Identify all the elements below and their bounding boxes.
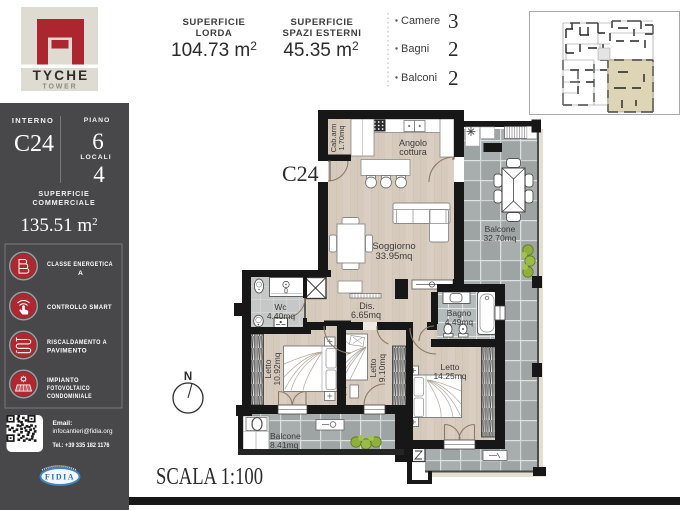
svg-text:2: 2 (448, 66, 459, 90)
svg-text:3: 3 (448, 9, 459, 33)
svg-text:6: 6 (92, 129, 104, 154)
svg-text:CLASSE ENERGETICA: CLASSE ENERGETICA (47, 261, 113, 268)
svg-text:infocantieri@fidia.org: infocantieri@fidia.org (53, 428, 113, 435)
svg-text:C24: C24 (14, 131, 54, 157)
svg-text:CONTROLLO SMART: CONTROLLO SMART (47, 304, 112, 311)
svg-text:33.95mq: 33.95mq (376, 251, 413, 262)
svg-text:Bagni: Bagni (401, 43, 429, 55)
svg-text:2: 2 (448, 37, 459, 61)
svg-text:14.25mq: 14.25mq (433, 371, 466, 381)
svg-text:1.70mq: 1.70mq (337, 125, 346, 150)
svg-text:SUPERFICIE: SUPERFICIE (38, 189, 89, 198)
svg-text:N: N (184, 371, 192, 383)
svg-text:IMPIANTO: IMPIANTO (47, 377, 79, 384)
svg-text:SUPERFICIE: SUPERFICIE (182, 17, 245, 28)
svg-text:CONDOMINIALE: CONDOMINIALE (47, 393, 92, 400)
svg-text:Balconi: Balconi (401, 72, 437, 84)
svg-text:Camere: Camere (401, 15, 440, 27)
svg-text:Email:: Email: (53, 420, 73, 427)
svg-text:COMMERCIALE: COMMERCIALE (32, 198, 95, 207)
svg-text:cottura: cottura (399, 147, 427, 157)
svg-text:FIDIA: FIDIA (45, 473, 75, 482)
svg-text:45.35 m2: 45.35 m2 (283, 39, 359, 61)
svg-text:6.65mq: 6.65mq (351, 310, 381, 320)
svg-text:PAVIMENTO: PAVIMENTO (47, 348, 87, 355)
svg-text:INTERNO: INTERNO (12, 116, 54, 125)
svg-text:SPAZI ESTERNI: SPAZI ESTERNI (283, 28, 362, 39)
svg-text:SCALA 1:100: SCALA 1:100 (156, 464, 263, 490)
svg-text:SUPERFICIE: SUPERFICIE (290, 17, 353, 28)
svg-text:32.70mq: 32.70mq (483, 233, 516, 243)
svg-text:LORDA: LORDA (196, 28, 233, 39)
svg-text:Tel.: +39 335 182 1176: Tel.: +39 335 182 1176 (53, 442, 110, 449)
svg-text:LOCALI: LOCALI (80, 154, 111, 161)
svg-text:A: A (78, 270, 83, 277)
svg-text:10.92mq: 10.92mq (272, 352, 282, 385)
svg-text:4.40mq: 4.40mq (267, 311, 296, 321)
svg-text:9.10mq: 9.10mq (377, 354, 387, 383)
svg-text:RISCALDAMENTO A: RISCALDAMENTO A (47, 339, 107, 346)
svg-text:TOWER: TOWER (43, 84, 78, 91)
svg-text:PIANO: PIANO (84, 117, 111, 124)
svg-text:8.41mq: 8.41mq (270, 440, 299, 450)
svg-text:C24: C24 (282, 161, 319, 186)
svg-text:4: 4 (93, 162, 105, 187)
svg-text:135.51 m2: 135.51 m2 (20, 215, 97, 236)
svg-text:FOTOVOLTAICO: FOTOVOLTAICO (47, 385, 90, 392)
svg-text:4.49mq: 4.49mq (445, 317, 474, 327)
svg-text:TYCHE: TYCHE (33, 68, 90, 83)
svg-text:104.73 m2: 104.73 m2 (171, 39, 257, 61)
